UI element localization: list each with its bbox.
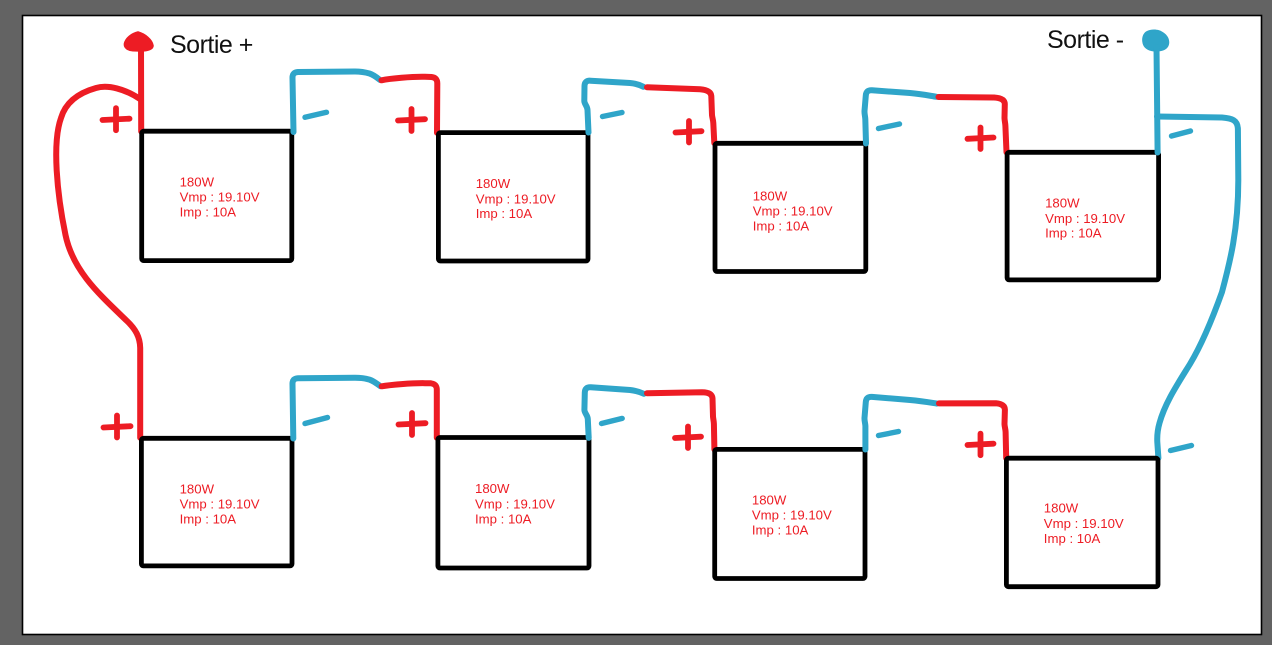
svg-text:Vmp : 19.10V: Vmp : 19.10V — [475, 497, 555, 512]
svg-text:Imp : 10A: Imp : 10A — [180, 205, 237, 220]
svg-text:180W: 180W — [180, 481, 215, 496]
svg-text:180W: 180W — [1045, 196, 1080, 211]
svg-text:Imp : 10A: Imp : 10A — [753, 219, 810, 234]
svg-text:Sortie +: Sortie + — [170, 31, 253, 59]
svg-text:Imp : 10A: Imp : 10A — [476, 206, 533, 221]
svg-text:Vmp : 19.10V: Vmp : 19.10V — [180, 190, 260, 205]
svg-text:180W: 180W — [476, 176, 511, 191]
svg-text:Imp : 10A: Imp : 10A — [752, 523, 809, 538]
svg-text:180W: 180W — [180, 174, 215, 189]
svg-text:Vmp : 19.10V: Vmp : 19.10V — [476, 191, 556, 206]
svg-text:Vmp : 19.10V: Vmp : 19.10V — [752, 508, 832, 523]
svg-text:180W: 180W — [752, 492, 787, 507]
svg-text:Imp : 10A: Imp : 10A — [1045, 226, 1102, 241]
svg-text:180W: 180W — [475, 481, 510, 496]
svg-text:Sortie -: Sortie - — [1047, 26, 1124, 54]
svg-text:Vmp : 19.10V: Vmp : 19.10V — [1044, 516, 1124, 531]
svg-text:Vmp : 19.10V: Vmp : 19.10V — [1045, 211, 1125, 226]
svg-text:Vmp : 19.10V: Vmp : 19.10V — [753, 204, 833, 219]
svg-text:180W: 180W — [1044, 501, 1079, 516]
svg-text:Imp : 10A: Imp : 10A — [180, 512, 237, 527]
svg-text:Vmp : 19.10V: Vmp : 19.10V — [180, 497, 260, 512]
svg-text:Imp : 10A: Imp : 10A — [475, 511, 532, 526]
svg-text:180W: 180W — [753, 188, 788, 203]
svg-text:Imp : 10A: Imp : 10A — [1044, 531, 1101, 546]
